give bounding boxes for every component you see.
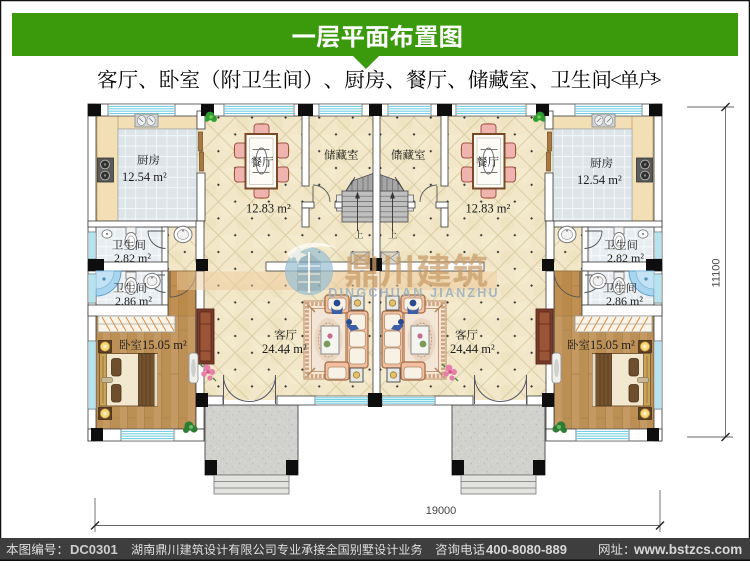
svg-text:24.44 m²: 24.44 m² xyxy=(450,342,495,356)
svg-text:DC0301: DC0301 xyxy=(70,542,118,557)
svg-text:12.83 m²: 12.83 m² xyxy=(246,202,291,216)
svg-text:15.05 m²: 15.05 m² xyxy=(142,338,187,352)
svg-text:2.82 m²: 2.82 m² xyxy=(114,251,151,265)
svg-text:12.54 m²: 12.54 m² xyxy=(122,170,167,184)
svg-text:12.83 m²: 12.83 m² xyxy=(466,202,511,216)
svg-text:12.54 m²: 12.54 m² xyxy=(577,173,622,187)
svg-text:www.bstzcs.com: www.bstzcs.com xyxy=(633,542,742,557)
svg-text:DINGCHUAN JIANZHU: DINGCHUAN JIANZHU xyxy=(328,286,499,300)
svg-text:19000: 19000 xyxy=(426,505,457,517)
svg-text:2.86 m²: 2.86 m² xyxy=(606,294,643,308)
svg-text:2.82 m²: 2.82 m² xyxy=(607,251,644,265)
svg-text:24.44 m²: 24.44 m² xyxy=(262,342,307,356)
svg-text:>: > xyxy=(650,68,662,92)
svg-text:11100: 11100 xyxy=(711,259,723,288)
svg-text:400-8080-889: 400-8080-889 xyxy=(486,542,567,557)
svg-text:<: < xyxy=(610,68,622,92)
svg-text:15.05 m²: 15.05 m² xyxy=(590,338,635,352)
svg-text:2.86 m²: 2.86 m² xyxy=(115,294,152,308)
